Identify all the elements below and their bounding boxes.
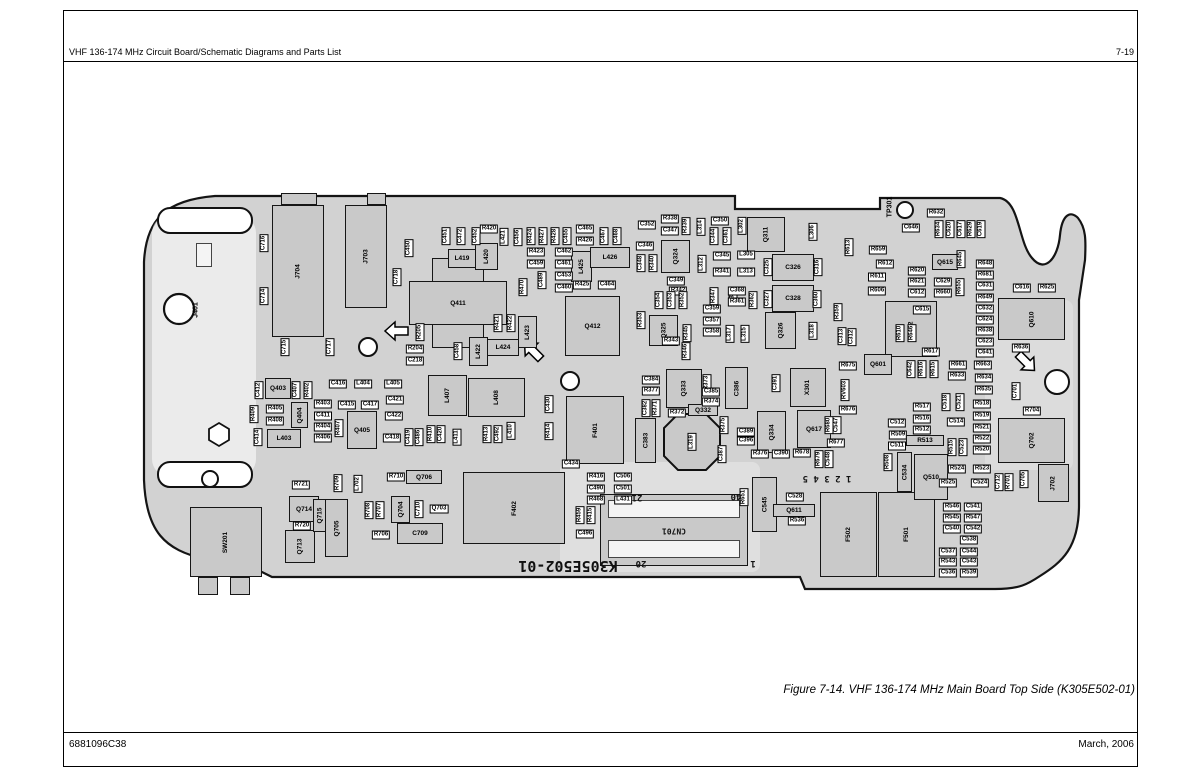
part-label: Q702 <box>1028 433 1035 449</box>
component-label-l404: L404 <box>354 380 372 389</box>
silkscreen-text: 1 <box>750 558 755 568</box>
component-label-c349: C349 <box>667 277 685 286</box>
component-label-c453: C453 <box>555 272 573 281</box>
component-label-c492: C492 <box>494 425 503 443</box>
component-label-r403: R403 <box>314 400 332 409</box>
component-label-r508: R508 <box>884 453 893 471</box>
component-label-l431: L431 <box>614 496 632 505</box>
component-label-c642: C642 <box>907 360 916 378</box>
component-label-r376: R376 <box>751 450 769 459</box>
component-label-r422: R422 <box>507 314 516 332</box>
component-label-q703: Q703 <box>430 505 449 514</box>
component-label-c458: C458 <box>454 342 463 360</box>
component-label-r345: R345 <box>683 324 692 342</box>
component-label-c396: C396 <box>737 437 755 446</box>
component-label-l313: L313 <box>737 268 755 277</box>
component-label-c354: C354 <box>655 291 664 309</box>
part-q510: Q510 <box>914 454 948 500</box>
component-label-c412: C412 <box>255 381 264 399</box>
component-label-l315: L315 <box>741 325 750 343</box>
part-label: Q704 <box>397 502 404 518</box>
component-label-r634: R634 <box>975 374 993 383</box>
part-r513: R513 <box>906 435 944 446</box>
component-label-c489: C489 <box>538 271 547 289</box>
part-l425: L425 <box>571 251 592 282</box>
part-q704: Q704 <box>391 496 410 523</box>
component-label-l314: L314 <box>697 218 706 236</box>
component-label-r676: R676 <box>839 406 857 415</box>
component-label-c712: C712 <box>995 473 1004 491</box>
component-label-c462: C462 <box>555 248 573 257</box>
footer-date: March, 2006 <box>1078 739 1134 750</box>
component-label-c490: C490 <box>587 485 605 494</box>
part-body <box>230 577 250 595</box>
part-label: Q412 <box>585 323 601 330</box>
component-label-r632: R632 <box>927 209 945 218</box>
component-label-r371: R371 <box>652 399 661 417</box>
component-label-r701: R701 <box>1005 473 1014 491</box>
component-label-c528: C528 <box>786 493 804 502</box>
component-label-c348: C348 <box>637 254 646 272</box>
component-label-c512: C512 <box>888 419 906 428</box>
component-label-c391: C391 <box>772 374 781 392</box>
component-label-c459: C459 <box>527 260 545 269</box>
component-label-c612: C612 <box>908 289 926 298</box>
part-label: C328 <box>785 295 801 302</box>
component-label-r359: R359 <box>834 303 843 321</box>
component-label-r677: R677 <box>827 439 845 448</box>
component-label-r663: R663 <box>974 361 992 370</box>
component-label-c543: C543 <box>960 558 978 567</box>
component-label-r402: R402 <box>304 381 313 399</box>
component-label-c486: C486 <box>415 428 424 446</box>
component-label-r470: R470 <box>519 278 528 296</box>
part-l426: L426 <box>590 247 630 268</box>
component-label-r347: R347 <box>710 287 719 305</box>
component-label-r375: R375 <box>720 416 729 434</box>
component-label-r635: R635 <box>975 386 993 395</box>
part-label: J702 <box>1050 476 1057 490</box>
component-label-c327: C327 <box>764 290 773 308</box>
component-label-r408: R408 <box>266 417 284 426</box>
component-label-c624: C624 <box>976 316 994 325</box>
part-label: Q615 <box>937 259 953 266</box>
component-label-c344: C344 <box>710 227 719 245</box>
component-label-r414: R414 <box>545 422 554 440</box>
component-label-c420: C420 <box>437 425 446 443</box>
component-label-c360: C360 <box>813 290 822 308</box>
part-q405: Q405 <box>347 411 377 449</box>
component-label-c521: C521 <box>956 393 965 411</box>
component-label-c501: C501 <box>614 485 632 494</box>
part-l419: L419 <box>448 249 476 268</box>
component-label-c387: C387 <box>718 445 727 463</box>
component-label-c468: C468 <box>613 227 622 245</box>
component-label-r468: R468 <box>587 496 605 505</box>
component-label-r522: R522 <box>973 435 991 444</box>
part-q411: Q411 <box>409 281 507 325</box>
component-label-r409: R409 <box>250 405 259 423</box>
component-label-r706: R706 <box>372 531 390 540</box>
component-label-r720: R720 <box>293 522 311 531</box>
component-label-r341: R341 <box>713 268 731 277</box>
component-label-c456: C456 <box>514 228 523 246</box>
component-label-c632: C632 <box>976 305 994 314</box>
component-label-r525: R525 <box>939 479 957 488</box>
component-label-c361: C361 <box>723 227 732 245</box>
component-label-r420: R420 <box>480 225 498 234</box>
footer-rule <box>63 732 1137 733</box>
component-label-c419: C419 <box>405 428 414 446</box>
component-label-r606: R606 <box>868 287 886 296</box>
part-body <box>608 540 740 558</box>
component-label-c705: C705 <box>1020 470 1029 488</box>
component-label-rv603: RV603 <box>841 379 850 401</box>
component-label-c716: C716 <box>260 234 269 252</box>
component-label-c368: C368 <box>728 287 746 296</box>
component-label-r428: R428 <box>551 227 560 245</box>
component-label-c548: C548 <box>825 450 834 468</box>
component-label-l317: L317 <box>726 325 735 343</box>
part-j703: J703 <box>345 205 387 308</box>
component-label-c357: C357 <box>703 317 721 326</box>
component-label-r405: R405 <box>266 405 284 414</box>
part-q326: Q326 <box>765 312 796 349</box>
component-label-r707: R707 <box>376 501 385 519</box>
pcb-board-diagram: J704J703Q411Q412L419L420L425L426L422L424… <box>0 0 1200 776</box>
part-q702: Q702 <box>998 418 1065 463</box>
component-label-c411: C411 <box>314 412 332 421</box>
part-label: L425 <box>578 259 585 274</box>
component-label-r721: R721 <box>292 481 310 490</box>
component-label-c496: C496 <box>576 530 594 539</box>
part-f402: F402 <box>463 472 565 544</box>
component-label-c316: C316 <box>814 258 823 276</box>
silkscreen-text: CN701 <box>662 527 686 536</box>
component-label-c538: C538 <box>960 536 978 545</box>
part-c386: C386 <box>725 367 748 409</box>
component-label-c218: C218 <box>406 357 424 366</box>
component-label-l702: L702 <box>354 475 363 493</box>
component-label-r374: R374 <box>702 398 720 407</box>
component-label-r709: R709 <box>334 474 343 492</box>
component-label-c467: C467 <box>600 227 609 245</box>
component-label-c641: C641 <box>976 349 994 358</box>
component-label-c430: C430 <box>545 395 554 413</box>
component-label-r512: R512 <box>913 426 931 435</box>
part-label: Q714 <box>296 506 312 513</box>
component-label-l306: L306 <box>809 223 818 241</box>
component-label-c547: C547 <box>833 416 842 434</box>
part-label: L403 <box>277 435 292 442</box>
component-label-c541: C541 <box>964 503 982 512</box>
component-label-c544: C544 <box>960 548 978 557</box>
component-label-c646: C646 <box>902 224 920 233</box>
component-label-c620: C620 <box>946 220 955 238</box>
component-label-j401: J401 <box>193 301 200 319</box>
component-label-r611: R611 <box>868 273 886 282</box>
part-label: Q611 <box>786 507 802 514</box>
component-label-c418: C418 <box>383 434 401 443</box>
component-label-c472: C472 <box>457 227 466 245</box>
part-label: Q601 <box>870 361 886 368</box>
part-label: C326 <box>785 264 801 271</box>
silkscreen-text: 21 <box>632 492 643 502</box>
component-label-c350: C350 <box>711 217 729 226</box>
component-label-r546: R546 <box>943 503 961 512</box>
part-l423: L423 <box>518 316 537 348</box>
component-label-r645: R645 <box>957 250 966 268</box>
component-label-c524: C524 <box>971 479 989 488</box>
component-label-r523: R523 <box>973 465 991 474</box>
component-label-r646: R646 <box>908 324 917 342</box>
part-q403: Q403 <box>265 378 291 399</box>
component-label-r519: R519 <box>973 412 991 421</box>
component-label-c422: C422 <box>385 412 403 421</box>
component-label-r681: R681 <box>976 271 994 280</box>
component-label-r346: R346 <box>682 342 691 360</box>
component-label-c313: C313 <box>838 327 847 345</box>
component-label-r659: R659 <box>869 246 887 255</box>
component-label-c358: C358 <box>703 328 721 337</box>
component-label-c542: C542 <box>964 525 982 534</box>
part-q706: Q706 <box>406 470 442 484</box>
part-j704: J704 <box>272 205 324 337</box>
component-label-c434: C434 <box>562 460 580 469</box>
component-label-c619: C619 <box>977 220 986 238</box>
component-label-c523: C523 <box>959 438 968 456</box>
component-label-c455: C455 <box>563 227 572 245</box>
component-label-r679: R679 <box>815 450 824 468</box>
part-label: Q706 <box>416 474 432 481</box>
part-f501: F501 <box>878 492 935 577</box>
part-label: R513 <box>917 437 933 444</box>
component-label-r636: R636 <box>1012 344 1030 353</box>
part-q324: Q324 <box>661 240 690 273</box>
part-c383: C383 <box>635 418 656 463</box>
part-label: C534 <box>901 464 908 480</box>
component-label-r515: R515 <box>948 438 957 456</box>
component-label-r616: R616 <box>918 360 927 378</box>
component-label-c312: C312 <box>848 328 857 346</box>
part-label: Q324 <box>672 249 679 265</box>
component-label-c390: C390 <box>772 450 790 459</box>
part-f401: F401 <box>566 396 624 464</box>
component-label-r424: R424 <box>527 227 536 245</box>
component-label-r404: R404 <box>314 423 332 432</box>
part-body <box>196 243 212 267</box>
part-label: C386 <box>733 380 740 396</box>
component-label-c616: C616 <box>1013 284 1031 293</box>
part-label: L419 <box>455 255 470 262</box>
part-q412: Q412 <box>565 296 620 356</box>
component-label-r520: R520 <box>973 446 991 455</box>
part-l420: L420 <box>475 243 498 270</box>
component-label-r543: R543 <box>939 558 957 567</box>
component-label-r427: R427 <box>539 227 548 245</box>
part-label: L408 <box>493 390 500 405</box>
component-label-l302: L302 <box>738 217 747 235</box>
component-label-l411: L411 <box>453 428 462 445</box>
part-l408: L408 <box>468 378 525 417</box>
manual-page: VHF 136-174 MHz Circuit Board/Schematic … <box>0 0 1200 776</box>
component-label-r518: R518 <box>973 400 991 409</box>
component-label-r613: R613 <box>845 238 854 256</box>
component-label-r372: R372 <box>668 409 686 418</box>
component-label-r353: R353 <box>637 311 646 329</box>
component-label-c385: C385 <box>702 388 720 397</box>
component-label-r633: R633 <box>948 372 966 381</box>
part-l424: L424 <box>487 339 519 356</box>
component-label-r612: R612 <box>876 260 894 269</box>
component-label-c417: C417 <box>361 401 379 410</box>
component-label-c537: C537 <box>939 548 957 557</box>
part-label: C545 <box>761 497 768 513</box>
silkscreen-text: 40 <box>731 491 742 501</box>
component-label-r621: R621 <box>908 278 926 287</box>
component-label-c384: C384 <box>642 376 660 385</box>
component-label-c518: C518 <box>942 393 951 411</box>
component-label-r521: R521 <box>973 424 991 433</box>
component-label-r352: R352 <box>679 291 688 309</box>
component-label-l410: L410 <box>507 422 516 440</box>
component-label-c464: C464 <box>598 281 616 290</box>
component-label-c359: C359 <box>703 305 721 314</box>
component-label-r407: R407 <box>335 419 344 437</box>
component-label-c353: C353 <box>667 291 676 309</box>
part-label: F502 <box>845 527 852 542</box>
component-label-c710: C710 <box>415 500 424 518</box>
component-label-r340: R340 <box>649 254 658 272</box>
part-q715: Q715 <box>313 499 326 532</box>
component-label-r648: R648 <box>976 260 994 269</box>
component-label-r655: R655 <box>956 278 965 296</box>
part-q601: Q601 <box>864 354 892 375</box>
part-body <box>367 193 386 205</box>
figure-caption: Figure 7-14. VHF 136-174 MHz Main Board … <box>783 684 1135 696</box>
part-f502: F502 <box>820 492 877 577</box>
component-label-c623: C623 <box>976 338 994 347</box>
component-label-c717: C717 <box>326 338 335 356</box>
component-label-c352: C352 <box>638 221 656 230</box>
component-label-c407: C407 <box>292 381 301 399</box>
component-label-r545: R545 <box>943 514 961 523</box>
component-label-c460: C460 <box>555 284 573 293</box>
component-label-r509: R509 <box>889 431 907 440</box>
part-q705: Q705 <box>325 499 348 557</box>
part-label: Q617 <box>806 426 822 433</box>
component-label-r524: R524 <box>948 465 966 474</box>
part-label: X301 <box>805 380 812 395</box>
component-label-r516: R516 <box>913 415 931 424</box>
component-label-r343: R343 <box>662 337 680 346</box>
component-label-c461: C461 <box>555 260 573 269</box>
component-label-l405: L405 <box>384 380 402 389</box>
part-body <box>281 193 317 205</box>
part-label: L407 <box>444 388 451 403</box>
part-label: Q713 <box>297 539 304 555</box>
part-label: Q404 <box>296 407 303 423</box>
part-label: J704 <box>295 264 302 278</box>
part-sw201: SW201 <box>190 507 262 577</box>
component-label-c345: C345 <box>713 252 731 261</box>
component-label-r204: R204 <box>406 345 424 354</box>
component-label-r710: R710 <box>387 473 405 482</box>
part-q713: Q713 <box>285 530 315 563</box>
component-label-c506: C506 <box>614 473 632 482</box>
part-c709: C709 <box>397 523 443 544</box>
component-label-c414: C414 <box>254 428 263 446</box>
part-label: Q311 <box>762 227 769 243</box>
part-label: Q333 <box>681 381 688 397</box>
component-label-l318: L318 <box>809 322 818 340</box>
component-label-r421: R421 <box>494 314 503 332</box>
component-label-r704: R704 <box>1023 407 1041 416</box>
part-label: SW201 <box>222 531 229 552</box>
part-label: F402 <box>510 501 517 516</box>
silkscreen-text: K305E502-01 <box>518 557 617 575</box>
component-label-r625: R625 <box>1038 284 1056 293</box>
component-label-l421: L421 <box>500 228 509 246</box>
component-label-c615: C615 <box>913 306 931 315</box>
silkscreen-text: 1 2 3 4 5 <box>803 473 852 483</box>
component-label-c389: C389 <box>737 428 755 437</box>
component-label-r406: R406 <box>314 434 332 443</box>
part-label: Q715 <box>316 508 323 524</box>
part-q610: Q610 <box>998 298 1065 340</box>
part-j702: J702 <box>1038 464 1069 502</box>
component-label-c701: C701 <box>1012 382 1021 400</box>
hex-pad <box>209 423 229 446</box>
component-label-c382: C382 <box>642 399 651 417</box>
component-label-r634: R634 <box>935 220 944 238</box>
component-label-c631: C631 <box>976 282 994 291</box>
part-q333: Q333 <box>666 369 702 408</box>
component-label-r617: R617 <box>922 348 940 357</box>
part-label: C709 <box>412 530 428 537</box>
component-label-c540: C540 <box>943 525 961 534</box>
component-label-c346: C346 <box>636 242 654 251</box>
part-c534: C534 <box>897 452 912 492</box>
part-c328: C328 <box>772 285 814 312</box>
component-label-r415: R415 <box>587 506 596 524</box>
part-label: Q405 <box>354 427 370 434</box>
component-label-c511: C511 <box>888 442 906 451</box>
component-label-r661: R661 <box>949 361 967 370</box>
part-label: Q326 <box>777 323 784 339</box>
component-label-r459: R459 <box>576 506 585 524</box>
component-label-r362: R362 <box>749 291 758 309</box>
component-label-c536: C536 <box>939 569 957 578</box>
part-l422: L422 <box>469 337 488 366</box>
component-label-l305: L305 <box>737 251 755 260</box>
component-label-c714: C714 <box>260 287 269 305</box>
part-l407: L407 <box>428 375 467 416</box>
component-label-r416: R416 <box>587 473 605 482</box>
component-label-c718: C718 <box>393 268 402 286</box>
part-label: F501 <box>903 527 910 542</box>
component-label-r338: R338 <box>661 215 679 224</box>
component-label-c629: C629 <box>934 278 952 287</box>
component-label-r615: R615 <box>930 360 939 378</box>
component-label-r377: R377 <box>642 387 660 396</box>
part-label: Q334 <box>768 424 775 440</box>
component-label-r423: R423 <box>527 248 545 257</box>
component-label-c617: C617 <box>957 220 966 238</box>
component-label-c347: C347 <box>661 227 679 236</box>
component-label-r410: R410 <box>427 425 436 443</box>
component-label-r536: R536 <box>788 517 806 526</box>
